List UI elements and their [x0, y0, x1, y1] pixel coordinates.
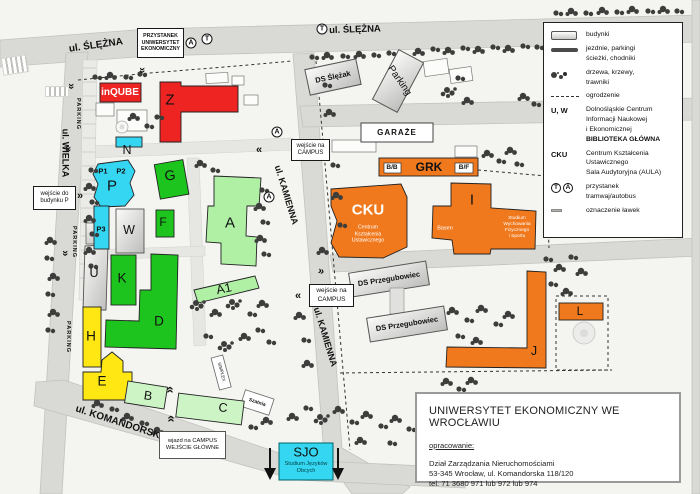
building-a-label: A: [225, 216, 235, 231]
building-grk-label: GRK: [416, 161, 443, 173]
legend-item-fence: ogrodzenie: [551, 91, 677, 101]
wjazd-campus-box: wjazd na CAMPUS WEJŚCIE GŁÓWNE: [159, 431, 226, 459]
przystanek-box: PRZYSTANEK UNIWERSYTET EKONOMICZNY: [137, 28, 184, 58]
chevron-icon-north-gate: »: [136, 67, 147, 72]
info-line-department: Dział Zarządzania Nieruchomościami: [429, 459, 667, 469]
building-inqube-label: inQUBE: [101, 88, 139, 98]
building-j-label: J: [531, 345, 537, 358]
tram-stop-icon: T: [202, 34, 213, 45]
fence-symbol-icon: [551, 96, 579, 97]
bus-stop-icon: A: [186, 38, 197, 49]
building-c-label: C: [218, 401, 228, 414]
building-symbol-icon: [551, 31, 577, 40]
legend-item-stops: T A przystanektramwaj/autobus: [551, 182, 677, 202]
courtyard-center: [580, 329, 588, 337]
building-b-label: B: [143, 389, 153, 403]
building-cku: [331, 184, 407, 258]
building-grk-bf-label: B/F: [459, 165, 469, 172]
legend: budynki jezdnie, parkingiścieżki, chodni…: [543, 22, 683, 238]
tram-stop-symbol-icon: T: [551, 183, 561, 193]
building-h-label: H: [86, 329, 96, 343]
legend-item-cku: CKU Centrum Kształcenia Ustawicznego Sal…: [551, 149, 677, 179]
building-p2-label: P2: [116, 167, 125, 175]
wejscie-campus-box-2: wejście na CAMPUS: [309, 284, 354, 307]
building-cku-label: CKU: [352, 203, 385, 218]
wejscie-budynek-p-box: wejście do budynku P: [33, 186, 76, 210]
road-right-edge: [692, 0, 700, 494]
building-f-label: F: [159, 216, 166, 228]
building-w-label: W: [123, 224, 135, 237]
parking-strip-label-1: PARKING: [74, 98, 80, 130]
info-line-phone: tel. 71 3680 971 lub 972 lub 974: [429, 479, 667, 489]
street-label-wielka: ul. WIELKA: [61, 129, 70, 178]
building-l-label: L: [577, 305, 584, 317]
building-p3-label: P3: [96, 225, 105, 233]
building-p-label: P: [107, 179, 117, 194]
chevron-icon-wielka-3: »: [59, 250, 70, 255]
legend-item-trees: drzewa, krzewy,trawniki: [551, 68, 677, 88]
fountain-center: [120, 125, 125, 130]
building-grk-bb-label: B/B: [386, 165, 397, 172]
legend-item-benches: oznaczenie ławek: [551, 206, 677, 216]
chevron-icon-kamienna-entry-3: «: [295, 291, 300, 302]
building-ds-connector: [390, 288, 404, 314]
road-symbol-icon: [551, 48, 578, 52]
building-k-label: K: [117, 271, 126, 285]
parking-strip-label-2: PARKING: [70, 226, 76, 258]
info-heading: opracowanie:: [429, 441, 667, 450]
building-i-label: I: [470, 193, 474, 208]
building-cku-sublabel: Centrum Kształcenia Ustawicznego: [352, 224, 384, 244]
chevron-icon-wejscie-p: »: [77, 191, 82, 202]
building-z-label: Z: [165, 93, 174, 108]
building-i-studium-label: Studium Wychowania Fizycznego i Sportu: [503, 216, 530, 240]
bench-symbol-icon: [551, 209, 562, 212]
legend-item-roads: jezdnie, parkingiścieżki, chodniki: [551, 44, 677, 64]
tram-stop-icon-east: T: [317, 24, 328, 35]
legend-item-buildings: budynki: [551, 30, 677, 40]
building-u-label: U: [89, 267, 98, 280]
campus-map: ul. ŚLĘŻNA ul. ŚLĘŻNA ul. WIELKA ul. KAM…: [0, 0, 700, 494]
legend-item-library: U, W Dolnośląskie Centrum Informacji Nau…: [551, 105, 677, 144]
building-p1-label: P1: [98, 167, 107, 175]
building-i-basen-label: Basen: [437, 226, 453, 232]
chevron-icon-kamienna-entry-1: «: [256, 145, 261, 156]
info-box: UNIWERSYTET EKONOMICZNY WE WROCŁAWIU opr…: [415, 392, 681, 483]
bus-stop-icon-kamienna-2: A: [264, 192, 275, 203]
building-g-label: G: [164, 167, 177, 182]
chevron-icon-main-gate-2: »: [163, 417, 176, 423]
tree-symbol-icon: [551, 72, 557, 78]
building-e-label: E: [97, 374, 106, 388]
parking-strip-label-3: PARKING: [64, 321, 70, 353]
building-sjo-label: SJO: [293, 446, 318, 459]
building-garaze-label: GARAŻE: [377, 129, 417, 137]
building-d-label: D: [154, 314, 164, 328]
bus-stop-icon-kamienna-1: A: [272, 127, 283, 138]
street-label-slezna-east: ul. ŚLĘŻNA: [329, 24, 381, 35]
chevron-icon-wielka-2: »: [62, 146, 73, 151]
university-title: UNIWERSYTET EKONOMICZNY WE WROCŁAWIU: [429, 405, 667, 429]
info-line-address: 53-345 Wrocław, ul. Komandorska 118/120: [429, 469, 667, 479]
building-n-label: N: [122, 144, 131, 157]
bus-stop-symbol-icon: A: [563, 183, 573, 193]
building-sjo-sublabel: Studium Języków Obcych: [285, 461, 328, 475]
chevron-icon-wielka-1: »: [65, 83, 76, 88]
chevron-icon-main-gate-1: »: [162, 388, 175, 394]
building-a1-label: A1: [215, 281, 233, 296]
wejscie-campus-box-1: wejście na CAMPUS: [291, 139, 330, 161]
